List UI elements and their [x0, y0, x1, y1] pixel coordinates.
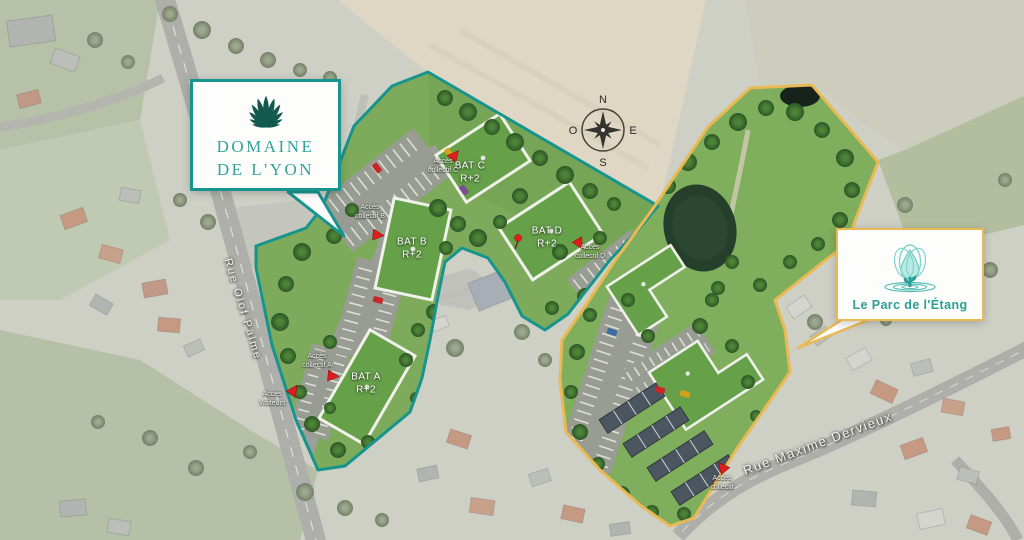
compass-south-label: S [599, 157, 606, 169]
access-label-collectif-c: Accès collectif C [428, 157, 458, 175]
domaine-de-lyon-card: DOMAINE DE L'YON [190, 79, 341, 191]
bat-c-label: BAT C R+2 [455, 161, 486, 186]
lotus-icon [225, 89, 307, 131]
pond-tulip-icon [877, 238, 943, 296]
domaine-title-line1: DOMAINE [217, 136, 315, 158]
site-plan: N E S O DOMAINE DE L'YON [0, 0, 1024, 540]
access-label-visiteurs: Accès Visiteurs [259, 390, 286, 408]
access-label-collectif-a: Accès collectif A [302, 352, 332, 370]
domaine-title: DOMAINE DE L'YON [217, 136, 315, 180]
bat-a-label: BAT A R+2 [351, 372, 380, 397]
parc-de-letang-card: Le Parc de l'Étang [836, 228, 984, 321]
compass-west-label: O [569, 125, 578, 137]
domaine-title-line2: DE L'YON [217, 159, 315, 181]
access-label-collectif-b: Accès collectif B [355, 203, 385, 221]
access-label-collectif-d: Accès collectif D [575, 243, 605, 261]
access-label-collectif-parc: Accès collectif [710, 474, 733, 492]
parc-title: Le Parc de l'Étang [852, 298, 967, 312]
compass-north-label: N [599, 94, 607, 106]
compass-east-label: E [629, 125, 636, 137]
bat-d-label: BAT D R+2 [532, 226, 563, 251]
bat-b-label: BAT B R+2 [397, 237, 427, 262]
